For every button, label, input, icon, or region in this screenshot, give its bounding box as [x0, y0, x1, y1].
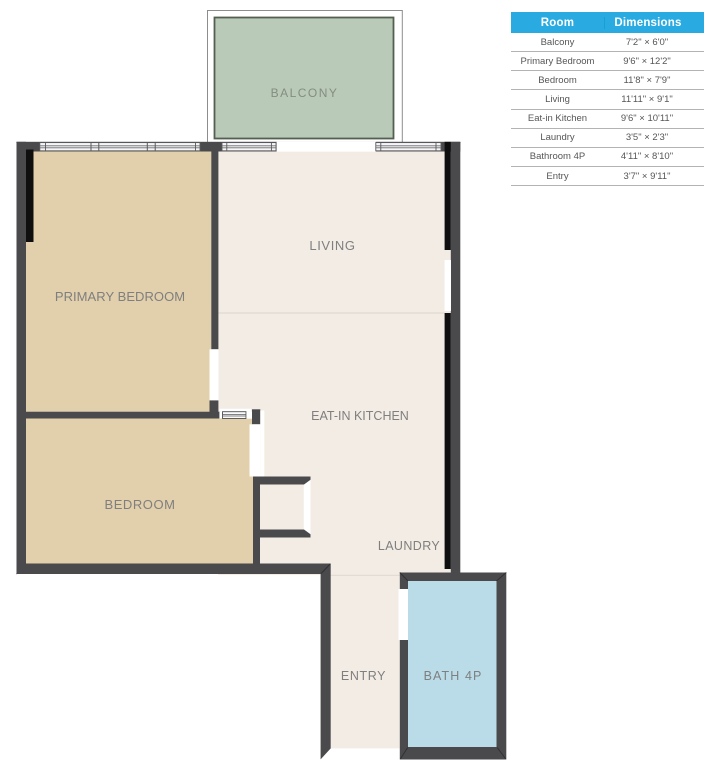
svg-text:LIVING: LIVING — [309, 238, 355, 253]
svg-text:ENTRY: ENTRY — [341, 669, 386, 683]
svg-text:BALCONY: BALCONY — [271, 86, 339, 100]
svg-text:LAUNDRY: LAUNDRY — [378, 539, 441, 553]
svg-text:EAT-IN KITCHEN: EAT-IN KITCHEN — [311, 409, 409, 423]
svg-text:BEDROOM: BEDROOM — [104, 497, 175, 512]
svg-text:BATH 4P: BATH 4P — [424, 669, 483, 683]
svg-text:PRIMARY BEDROOM: PRIMARY BEDROOM — [55, 289, 185, 304]
